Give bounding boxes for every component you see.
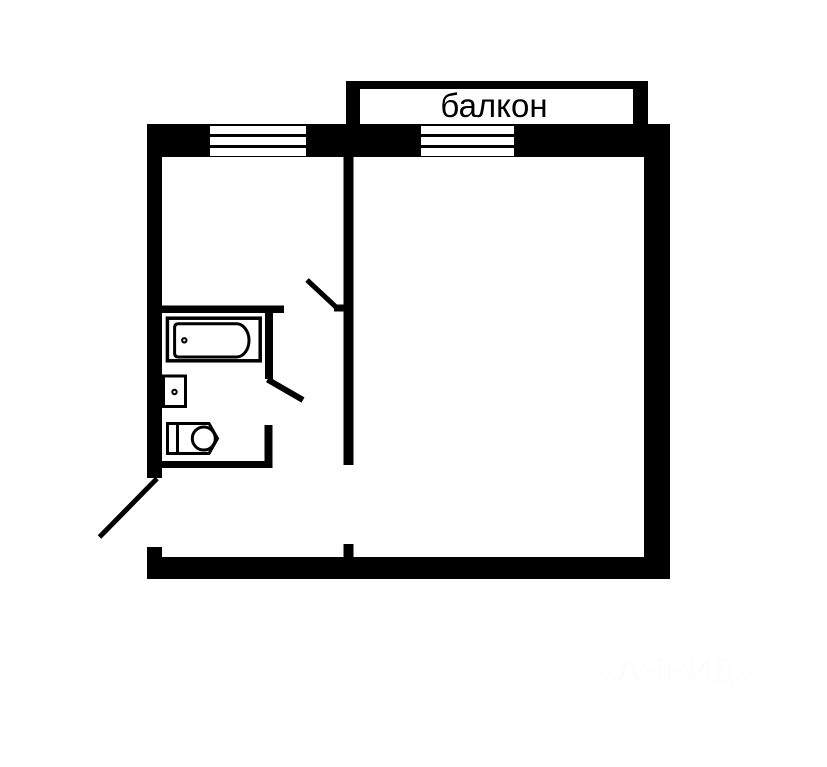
svg-text:балкон: балкон — [440, 87, 547, 124]
svg-text:«АЯРИД»: «АЯРИД» — [598, 652, 753, 690]
